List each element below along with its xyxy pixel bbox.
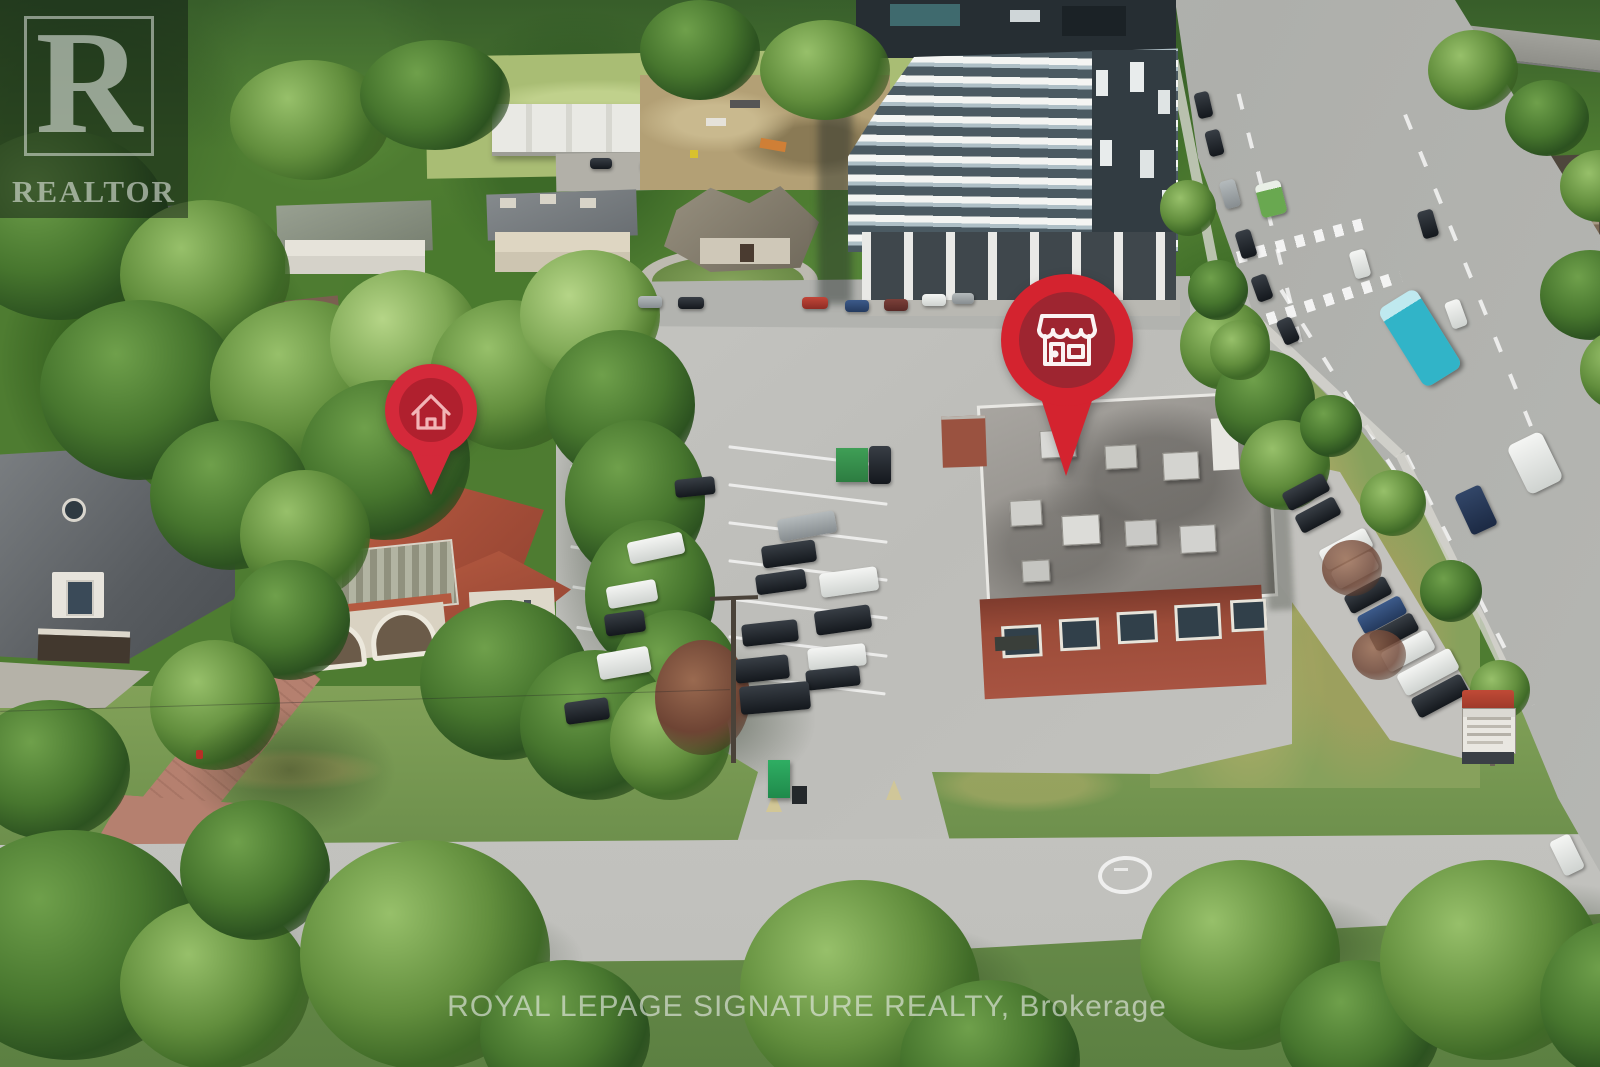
sign-line xyxy=(1467,717,1511,720)
car xyxy=(952,293,974,304)
sign-top xyxy=(1462,690,1514,708)
store-marker xyxy=(995,272,1139,480)
bare-tree xyxy=(1352,630,1406,680)
house-marker xyxy=(372,362,490,498)
round-window xyxy=(62,498,86,522)
tree xyxy=(1360,470,1426,536)
road-circle-marking-bar xyxy=(1114,868,1128,871)
mansion-facade xyxy=(285,240,425,274)
car xyxy=(922,294,946,306)
car xyxy=(845,300,869,312)
condo-roof-mech xyxy=(1062,6,1126,36)
stone-house-door xyxy=(740,244,754,262)
dormer xyxy=(580,198,596,208)
car xyxy=(884,299,908,311)
condo-window xyxy=(1130,62,1144,92)
hvac-unit xyxy=(1179,524,1216,554)
construction-material xyxy=(690,150,698,158)
construction-material xyxy=(706,118,726,126)
construction-material xyxy=(730,100,760,108)
hvac-unit xyxy=(1162,451,1199,481)
hvac-unit xyxy=(1021,559,1050,582)
realtor-logo-text: REALTOR xyxy=(0,174,188,210)
tree xyxy=(1505,80,1589,156)
green-bin xyxy=(768,760,790,798)
dormer xyxy=(540,194,556,204)
condo-roof-mech xyxy=(1010,10,1040,22)
car xyxy=(678,297,704,309)
tree xyxy=(1210,320,1270,380)
sign-panel xyxy=(1462,708,1516,754)
brokerage-watermark: ROYAL LEPAGE SIGNATURE REALTY, Brokerage xyxy=(447,990,1167,1024)
hvac-unit xyxy=(1124,519,1157,547)
utility-pole xyxy=(731,598,736,763)
hvac-unit xyxy=(1061,514,1101,546)
sign-line xyxy=(1467,733,1511,736)
sign-base-panel xyxy=(1462,752,1514,764)
dumpster xyxy=(836,448,868,482)
window xyxy=(1230,598,1268,632)
parking-line xyxy=(728,483,887,505)
pavement-arrow xyxy=(886,780,902,800)
window xyxy=(1116,610,1158,644)
condo-window xyxy=(1100,140,1112,166)
tree xyxy=(360,40,510,150)
truck xyxy=(869,446,891,484)
window xyxy=(1174,603,1222,641)
tree xyxy=(760,20,890,120)
realtor-logo-box: R xyxy=(24,16,154,156)
car xyxy=(590,158,612,169)
road-circle-marking xyxy=(1097,854,1154,896)
window xyxy=(1059,617,1101,651)
entrance-canopy xyxy=(995,635,1038,651)
tree xyxy=(1300,395,1362,457)
condo-window xyxy=(1158,90,1170,114)
realtor-watermark: R REALTOR xyxy=(0,0,188,218)
car xyxy=(638,296,662,308)
sign-line xyxy=(1467,725,1511,728)
car xyxy=(802,297,828,309)
sign-line xyxy=(1467,741,1503,744)
aerial-photo: R REALTOR ROYAL LEPAGE SIGNATURE REALTY,… xyxy=(0,0,1600,1067)
tree xyxy=(1428,30,1518,110)
realtor-logo-letter: R xyxy=(36,1,143,165)
tree xyxy=(1188,260,1248,320)
pin-inner-circle xyxy=(1019,292,1115,388)
hvac-unit xyxy=(1009,499,1042,527)
tree xyxy=(640,0,760,100)
condo-window xyxy=(1140,150,1154,178)
pin-inner-circle xyxy=(399,378,463,442)
tree xyxy=(1420,560,1482,622)
dormer-window xyxy=(66,580,94,616)
dark-bin xyxy=(792,786,807,804)
lane-marking xyxy=(1403,114,1557,486)
brick-annex xyxy=(941,415,987,468)
condo-window xyxy=(1096,70,1108,96)
tree xyxy=(1160,180,1216,236)
dormer xyxy=(52,572,104,618)
dormer xyxy=(500,198,516,208)
condo-roof-deck xyxy=(890,4,960,26)
garage-doors xyxy=(38,634,131,663)
bare-tree xyxy=(1322,540,1382,596)
